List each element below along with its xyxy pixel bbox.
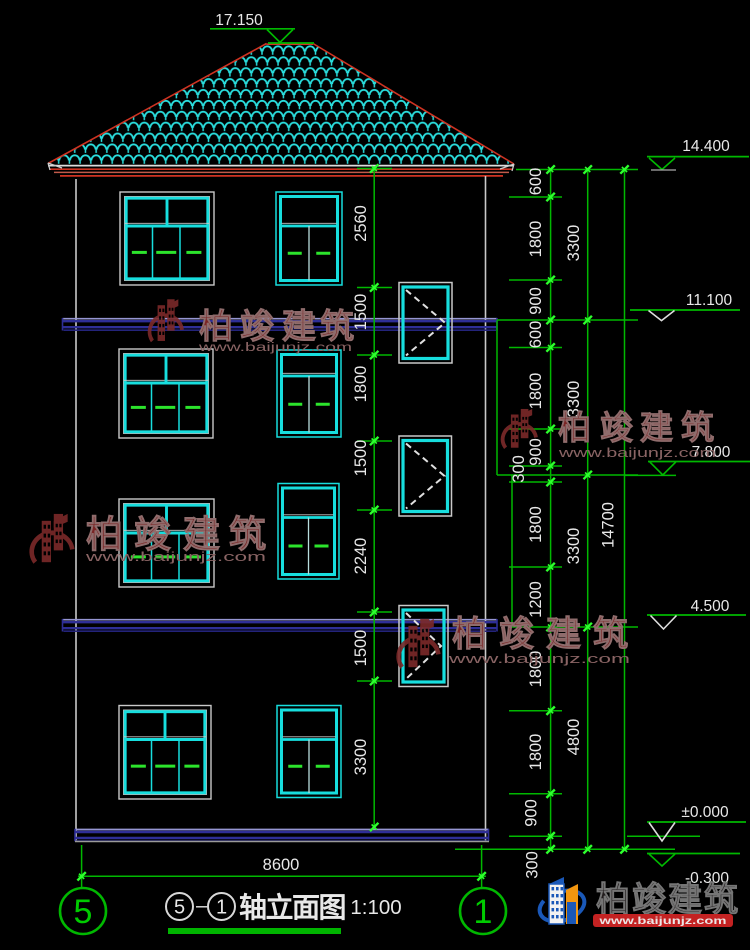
- svg-text:1200: 1200: [527, 581, 545, 618]
- svg-text:建: 建: [546, 615, 581, 654]
- svg-text:5: 5: [174, 897, 185, 919]
- svg-text:300: 300: [510, 455, 528, 483]
- svg-text:600: 600: [527, 321, 545, 349]
- svg-text:筑: 筑: [320, 308, 354, 346]
- svg-text:3300: 3300: [352, 739, 370, 776]
- svg-text:建: 建: [640, 409, 673, 446]
- svg-text:14.400: 14.400: [682, 138, 730, 155]
- svg-text:建: 建: [282, 308, 316, 346]
- svg-text:1500: 1500: [352, 294, 370, 331]
- svg-text:1: 1: [474, 893, 493, 931]
- svg-text:3300: 3300: [565, 225, 583, 262]
- svg-text:1800: 1800: [527, 373, 545, 410]
- svg-text:2240: 2240: [352, 538, 370, 575]
- svg-text:柏: 柏: [558, 409, 591, 446]
- svg-text:柏: 柏: [199, 308, 233, 346]
- svg-text:柏: 柏: [596, 881, 630, 919]
- svg-text:1800: 1800: [527, 734, 545, 771]
- svg-text:5: 5: [74, 893, 93, 931]
- svg-text:轴立面图: 轴立面图: [239, 891, 346, 923]
- svg-text:竣: 竣: [240, 307, 274, 346]
- svg-text:www.baijunjz.com: www.baijunjz.com: [447, 652, 630, 666]
- svg-text:4.500: 4.500: [691, 598, 730, 615]
- svg-text:1800: 1800: [527, 221, 545, 258]
- svg-text:17.150: 17.150: [215, 12, 263, 29]
- svg-text:柏: 柏: [452, 615, 487, 654]
- svg-text:14700: 14700: [600, 502, 618, 548]
- svg-text:3300: 3300: [565, 528, 583, 565]
- svg-text:1500: 1500: [352, 440, 370, 477]
- svg-text:1800: 1800: [527, 506, 545, 543]
- svg-text:4800: 4800: [565, 719, 583, 756]
- svg-text:竣: 竣: [499, 614, 534, 654]
- svg-text:900: 900: [527, 438, 545, 466]
- svg-text:竣: 竣: [600, 409, 633, 446]
- svg-text:竣: 竣: [632, 880, 666, 919]
- svg-text:900: 900: [527, 287, 545, 315]
- svg-text:建: 建: [668, 881, 702, 919]
- svg-text:8600: 8600: [263, 856, 300, 874]
- svg-text:1800: 1800: [352, 366, 370, 403]
- svg-text:±0.000: ±0.000: [681, 804, 729, 821]
- svg-text:600: 600: [527, 168, 545, 196]
- svg-text:11.100: 11.100: [686, 292, 733, 309]
- svg-text:筑: 筑: [704, 881, 738, 919]
- svg-text:1500: 1500: [352, 630, 370, 667]
- svg-text:2560: 2560: [352, 205, 370, 242]
- svg-text:www.baijunjz.com: www.baijunjz.com: [197, 342, 352, 354]
- svg-text:300: 300: [524, 851, 542, 879]
- svg-text:1: 1: [216, 897, 227, 919]
- svg-text:www.baijunjz.com: www.baijunjz.com: [557, 446, 716, 460]
- svg-text:www.baijunjz.com: www.baijunjz.com: [598, 915, 726, 927]
- svg-text:1:100: 1:100: [350, 896, 401, 919]
- svg-text:筑: 筑: [681, 409, 714, 446]
- svg-text:–: –: [196, 895, 208, 917]
- svg-text:筑: 筑: [593, 615, 628, 654]
- svg-text:900: 900: [523, 799, 541, 827]
- svg-text:www.baijunjz.com: www.baijunjz.com: [84, 549, 266, 564]
